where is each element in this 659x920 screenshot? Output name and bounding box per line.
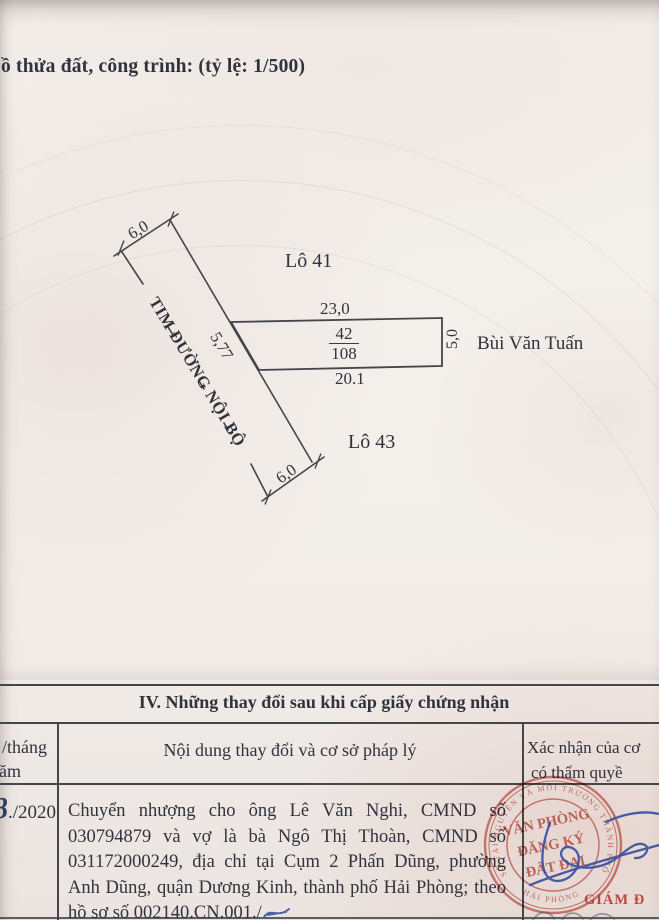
lot-41-label: Lô 41 xyxy=(285,250,332,273)
parcel-dim-top-label: 23,0 xyxy=(320,299,350,319)
parcel-number: 42 xyxy=(329,325,359,344)
column-header-date-line2: ăm xyxy=(0,759,47,783)
scanned-certificate-page: ồ thửa đất, công trình: (tỷ lệ: 1/500) L… xyxy=(0,0,659,920)
column-header-confirmation-line1: Xác nhận của cơ xyxy=(527,735,659,760)
parcel-area: 108 xyxy=(324,344,364,362)
change-date-cell: 8./2020 xyxy=(0,792,56,826)
content-line-last: hồ sơ số 002140.CN.001./ xyxy=(68,901,506,920)
adjacent-owner-label: Bùi Văn Tuấn xyxy=(477,333,583,355)
table-header-top-rule xyxy=(0,722,659,724)
content-line: Chuyển nhượng cho ông Lê Văn Nghi, CMND … xyxy=(68,799,506,825)
content-line: Anh Dũng, quận Dương Kinh, thành phố Hải… xyxy=(68,876,506,902)
parcel-dim-bottom-label: 20.1 xyxy=(335,369,365,389)
handwritten-flourish-icon xyxy=(262,905,292,920)
column-header-content: Nội dung thay đổi và cơ sở pháp lý xyxy=(57,740,523,761)
printed-date: ./2020 xyxy=(8,802,56,823)
table-top-rule xyxy=(0,684,659,686)
parcel-number-area-fraction: 42 108 xyxy=(324,325,364,362)
column-header-date-line1: /tháng xyxy=(2,735,47,759)
parcel-dim-right-label: 5,0 xyxy=(444,324,462,354)
handwritten-date-digit: 8 xyxy=(0,791,9,826)
content-line: 031172000249, địa chỉ tại Cụm 2 Phấn Dũn… xyxy=(68,850,506,876)
column-header-date: /tháng ăm xyxy=(2,735,47,783)
paper-crease xyxy=(0,664,659,680)
lot-43-label: Lô 43 xyxy=(348,431,395,454)
section-iv-title: IV. Những thay đổi sau khi cấp giấy chứn… xyxy=(0,692,648,713)
cutoff-handwriting xyxy=(528,907,618,920)
content-line: 030794879 và vợ là bà Ngô Thị Thoàn, CMN… xyxy=(68,825,506,851)
change-content-cell: Chuyển nhượng cho ông Lê Văn Nghi, CMND … xyxy=(68,799,506,920)
signature xyxy=(488,795,659,907)
